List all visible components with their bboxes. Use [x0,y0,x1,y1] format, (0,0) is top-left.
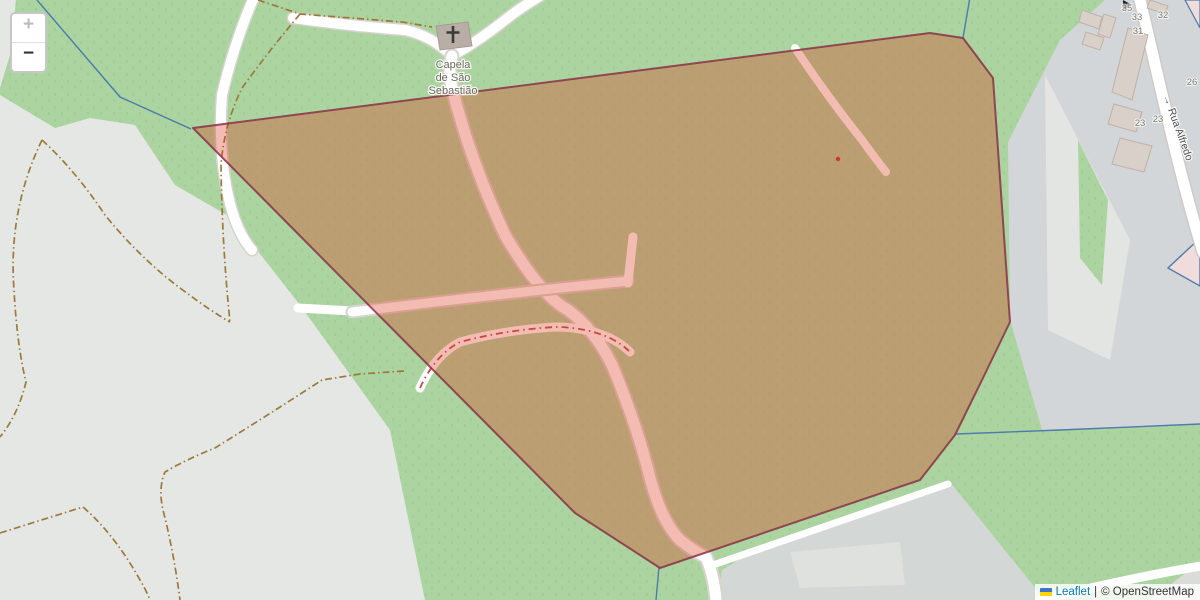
attribution-bar: Leaflet | © OpenStreetMap [1035,584,1200,600]
attribution-separator: | [1094,586,1097,598]
map-tiles: Capela de São Sebastião 35 33 32 31 26 2… [0,0,1200,600]
house-number: 35 [1122,3,1133,14]
chapel-label-line1: Capela [436,59,472,71]
ukraine-flag-icon [1040,588,1052,596]
leaflet-link[interactable]: Leaflet [1056,586,1091,598]
house-number: 23 [1153,114,1164,125]
house-number: 32 [1158,10,1169,21]
chapel-building [436,22,472,50]
chapel-label-line2: de São [436,72,471,84]
zoom-out-button[interactable]: − [12,43,45,71]
zoom-control: + − [10,12,47,73]
zoom-in-button[interactable]: + [12,14,45,43]
house-number: 31 [1133,26,1144,37]
house-number: 26 [1187,77,1198,88]
leaflet-map[interactable]: Capela de São Sebastião 35 33 32 31 26 2… [0,0,1200,600]
house-number: 23 [1135,118,1146,129]
chapel-label-line3: Sebastião [429,85,478,97]
osm-copyright[interactable]: © OpenStreetMap [1101,586,1194,598]
house-number: 33 [1132,12,1143,23]
